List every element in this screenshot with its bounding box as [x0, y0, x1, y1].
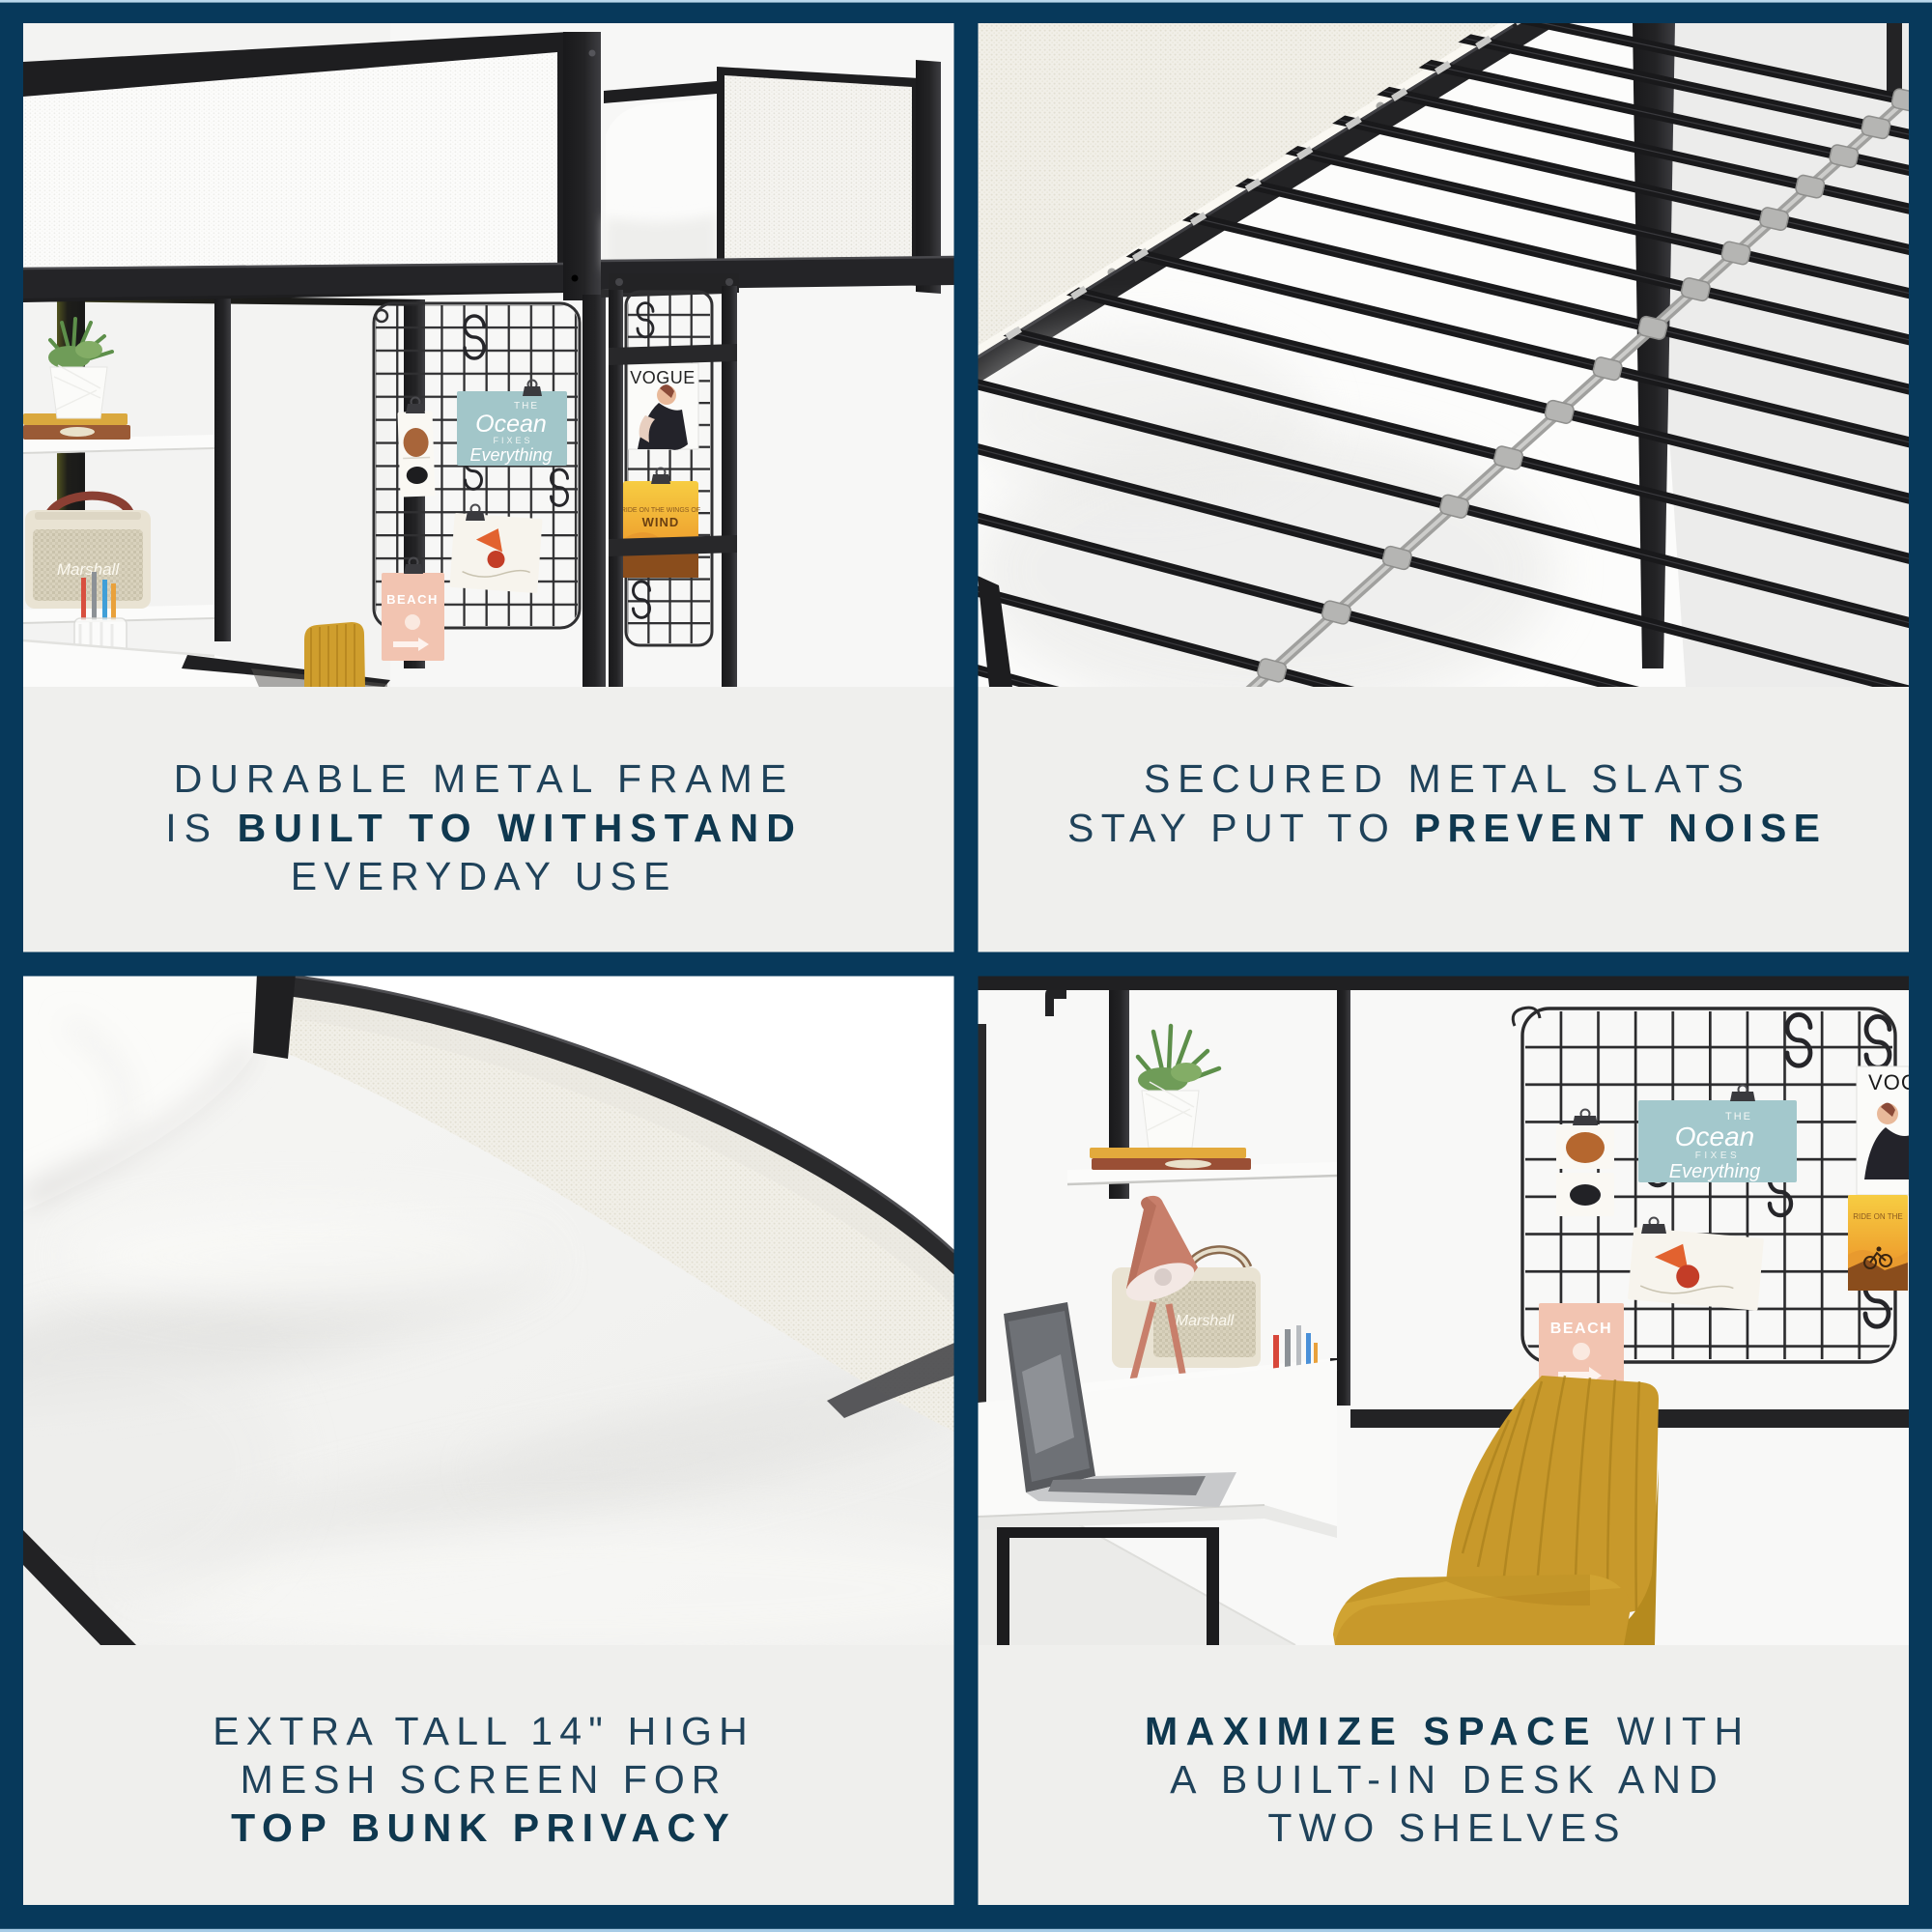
svg-text:TWO SHELVES: TWO SHELVES	[1267, 1805, 1626, 1850]
svg-text:A BUILT-IN DESK AND: A BUILT-IN DESK AND	[1170, 1757, 1725, 1802]
svg-text:FIXES: FIXES	[1695, 1151, 1740, 1161]
svg-text:Marshall: Marshall	[1176, 1313, 1235, 1329]
svg-text:TOP BUNK PRIVACY: TOP BUNK PRIVACY	[231, 1805, 736, 1850]
svg-text:BEACH: BEACH	[1550, 1321, 1612, 1337]
svg-text:EVERYDAY USE: EVERYDAY USE	[291, 854, 677, 898]
svg-text:VOGUE: VOGUE	[630, 368, 696, 387]
svg-text:EXTRA TALL 14" HIGH: EXTRA TALL 14" HIGH	[213, 1709, 754, 1753]
svg-text:STAY PUT TO PREVENT NOISE: STAY PUT TO PREVENT NOISE	[1067, 806, 1827, 850]
svg-text:BEACH: BEACH	[386, 592, 439, 607]
svg-text:WIND: WIND	[642, 515, 680, 529]
svg-text:Marshall: Marshall	[57, 560, 120, 579]
svg-text:MAXIMIZE SPACE WITH: MAXIMIZE SPACE WITH	[1145, 1709, 1751, 1753]
svg-text:IS BUILT TO WITHSTAND: IS BUILT TO WITHSTAND	[165, 806, 803, 850]
svg-text:DURABLE METAL FRAME: DURABLE METAL FRAME	[174, 756, 794, 801]
svg-text:Everything: Everything	[1669, 1161, 1761, 1182]
svg-text:Ocean: Ocean	[475, 411, 547, 438]
svg-text:SECURED METAL SLATS: SECURED METAL SLATS	[1144, 756, 1751, 801]
svg-text:Everything: Everything	[469, 445, 552, 465]
svg-text:FIXES: FIXES	[493, 436, 532, 445]
svg-text:MESH SCREEN FOR: MESH SCREEN FOR	[241, 1757, 727, 1802]
svg-text:RIDE ON THE: RIDE ON THE	[1853, 1212, 1902, 1221]
svg-text:RIDE ON THE WINGS OF: RIDE ON THE WINGS OF	[621, 507, 700, 514]
svg-text:Ocean: Ocean	[1675, 1122, 1755, 1151]
